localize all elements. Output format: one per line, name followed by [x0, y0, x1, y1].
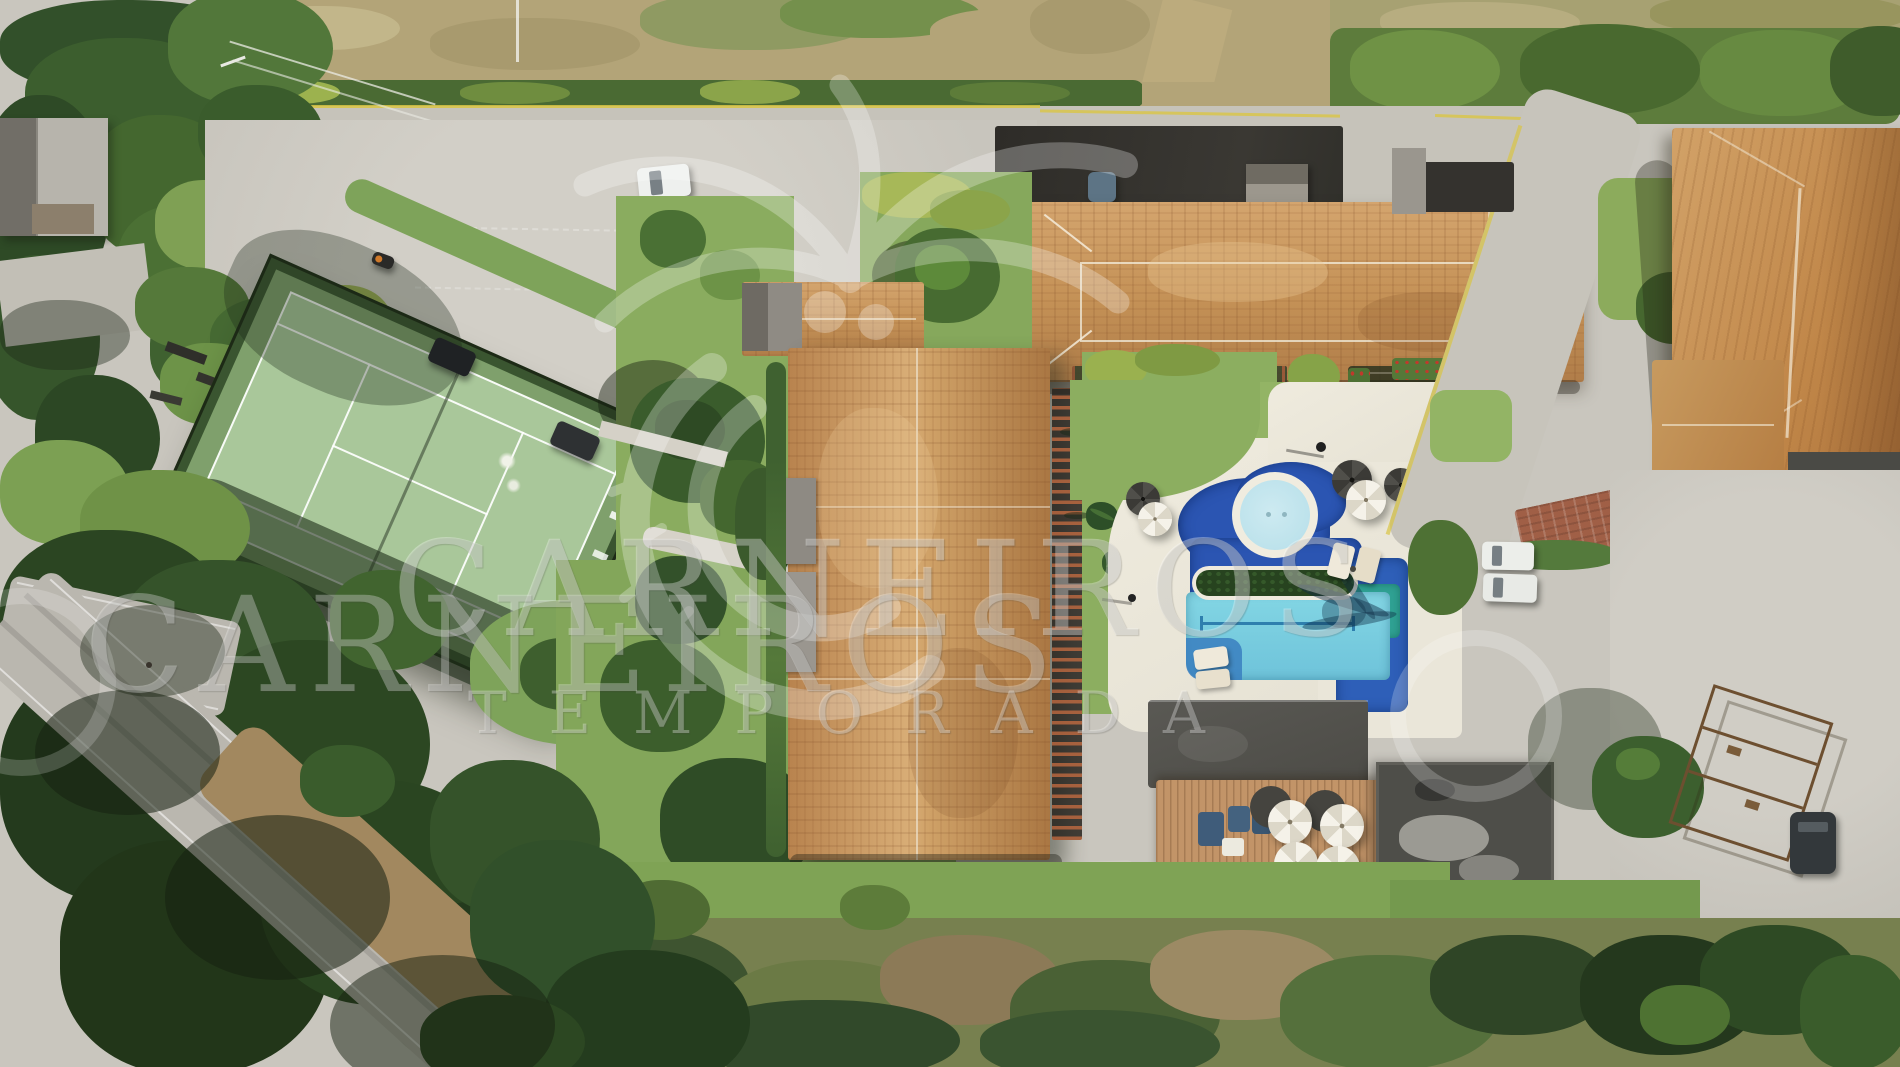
- decor: [1820, 128, 1900, 508]
- vegetation-clump: [1415, 779, 1455, 801]
- light-pole: [1316, 442, 1326, 452]
- flag-pole: [516, 0, 519, 62]
- vegetation-clump: [0, 300, 130, 370]
- shadow-blob: [165, 815, 390, 980]
- vegetation-clump: [460, 82, 570, 104]
- decor: [742, 283, 768, 351]
- wing-gray-box: [742, 283, 802, 351]
- vegetation-clump: [1640, 985, 1730, 1045]
- sofa-blue: [1198, 812, 1224, 846]
- decor: [1246, 164, 1308, 184]
- vegetation-clump: [1800, 955, 1900, 1067]
- vegetation-clump: [840, 885, 910, 930]
- house-deck: [32, 204, 94, 234]
- deck-table: [1222, 838, 1244, 856]
- white-car: [1483, 573, 1538, 603]
- decor: [1702, 726, 1817, 766]
- vegetation-clump: [950, 82, 1070, 104]
- hedge: [1408, 520, 1478, 615]
- watermark-subtitle: TEMPORADA: [468, 684, 1247, 742]
- roof-ridge-line: [1662, 424, 1774, 426]
- umbrella-white: [1268, 800, 1312, 844]
- car-windshield: [1492, 546, 1502, 566]
- decor: [1726, 745, 1742, 757]
- vegetation-clump: [1616, 748, 1660, 780]
- forest-corner-bottom-right: [1580, 925, 1900, 1067]
- vegetation-clump: [1399, 815, 1489, 861]
- umbrella-white: [1320, 804, 1364, 848]
- dark-suv: [1790, 812, 1836, 874]
- vegetation-clump: [1135, 344, 1220, 376]
- vegetation-clump: [430, 18, 640, 70]
- aerial-photo: CARNEIROS CARNEIROS TEMPORADA: [0, 0, 1900, 1067]
- vegetation-clump: [700, 80, 800, 104]
- white-car: [1482, 542, 1534, 571]
- decor: [0, 118, 36, 236]
- roof-ridge-line: [1709, 131, 1805, 188]
- hedge-gap: [1142, 82, 1332, 108]
- small-house: [0, 118, 108, 236]
- vegetation-clump: [1148, 242, 1328, 302]
- roof-ridge-line: [1044, 214, 1093, 253]
- vegetation-clump: [930, 190, 1010, 230]
- vegetation-clump: [300, 745, 395, 817]
- car-windshield: [649, 170, 663, 195]
- carport-car: [1088, 172, 1116, 202]
- decor: [374, 254, 383, 263]
- vegetation-clump: [1350, 30, 1500, 110]
- decor: [1744, 799, 1760, 811]
- lawn-right: [1430, 390, 1512, 462]
- yellow-curb: [205, 105, 1040, 108]
- vegetation-clump: [640, 210, 706, 268]
- car-windshield: [1798, 822, 1828, 832]
- car-windshield: [1493, 577, 1504, 597]
- sofa-blue: [1228, 806, 1250, 832]
- villa-carport-wall: [1392, 148, 1426, 214]
